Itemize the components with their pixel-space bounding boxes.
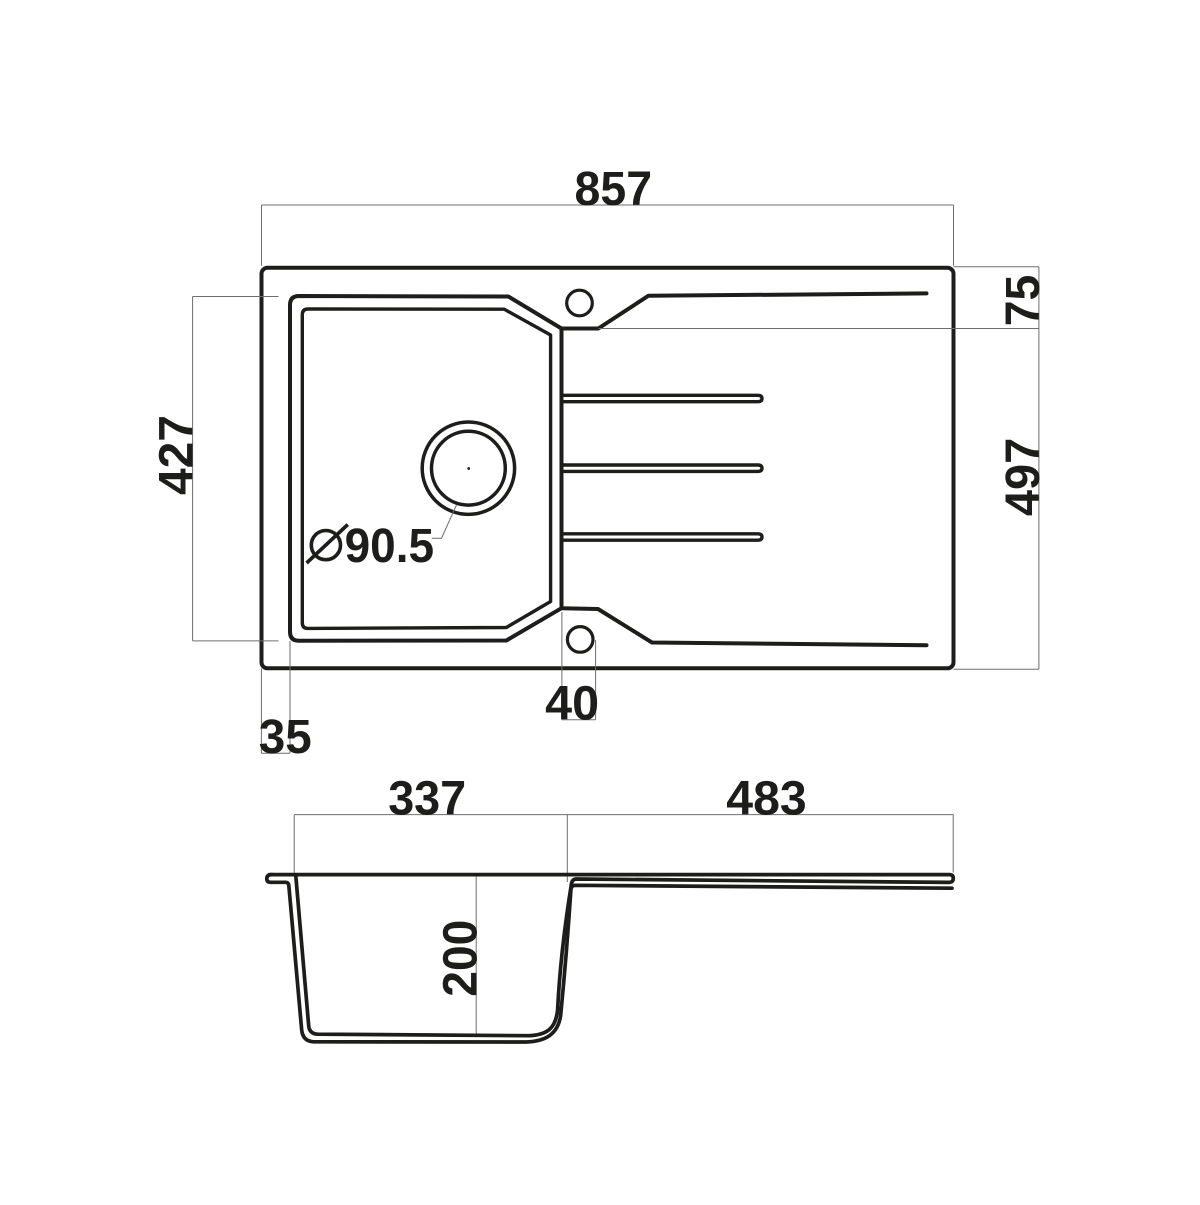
svg-text:40: 40 — [545, 677, 599, 730]
svg-text:483: 483 — [726, 772, 807, 825]
svg-text:857: 857 — [575, 163, 653, 216]
svg-text:90.5: 90.5 — [345, 520, 435, 573]
svg-text:497: 497 — [997, 438, 1050, 517]
svg-text:75: 75 — [997, 275, 1050, 327]
svg-text:337: 337 — [388, 772, 466, 825]
svg-text:200: 200 — [434, 920, 487, 997]
svg-text:35: 35 — [259, 711, 312, 764]
svg-text:427: 427 — [151, 415, 204, 495]
